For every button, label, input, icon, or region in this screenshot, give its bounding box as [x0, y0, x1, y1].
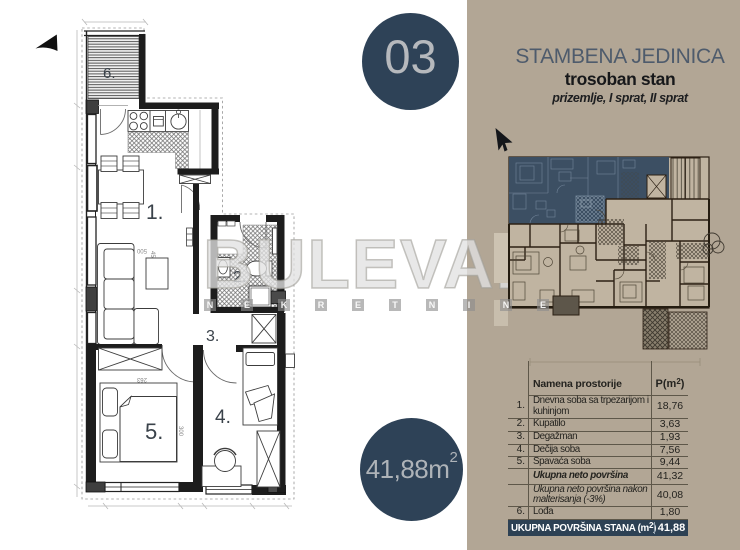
- svg-text:E: E: [355, 300, 361, 310]
- svg-text:K: K: [281, 300, 288, 310]
- svg-text:N: N: [429, 300, 436, 310]
- svg-text:N: N: [207, 300, 214, 310]
- svg-text:N: N: [503, 300, 510, 310]
- svg-text:E: E: [244, 300, 250, 310]
- svg-text:T: T: [392, 300, 398, 310]
- svg-text:E: E: [540, 300, 546, 310]
- svg-text:R: R: [318, 300, 325, 310]
- svg-text:I: I: [468, 300, 471, 310]
